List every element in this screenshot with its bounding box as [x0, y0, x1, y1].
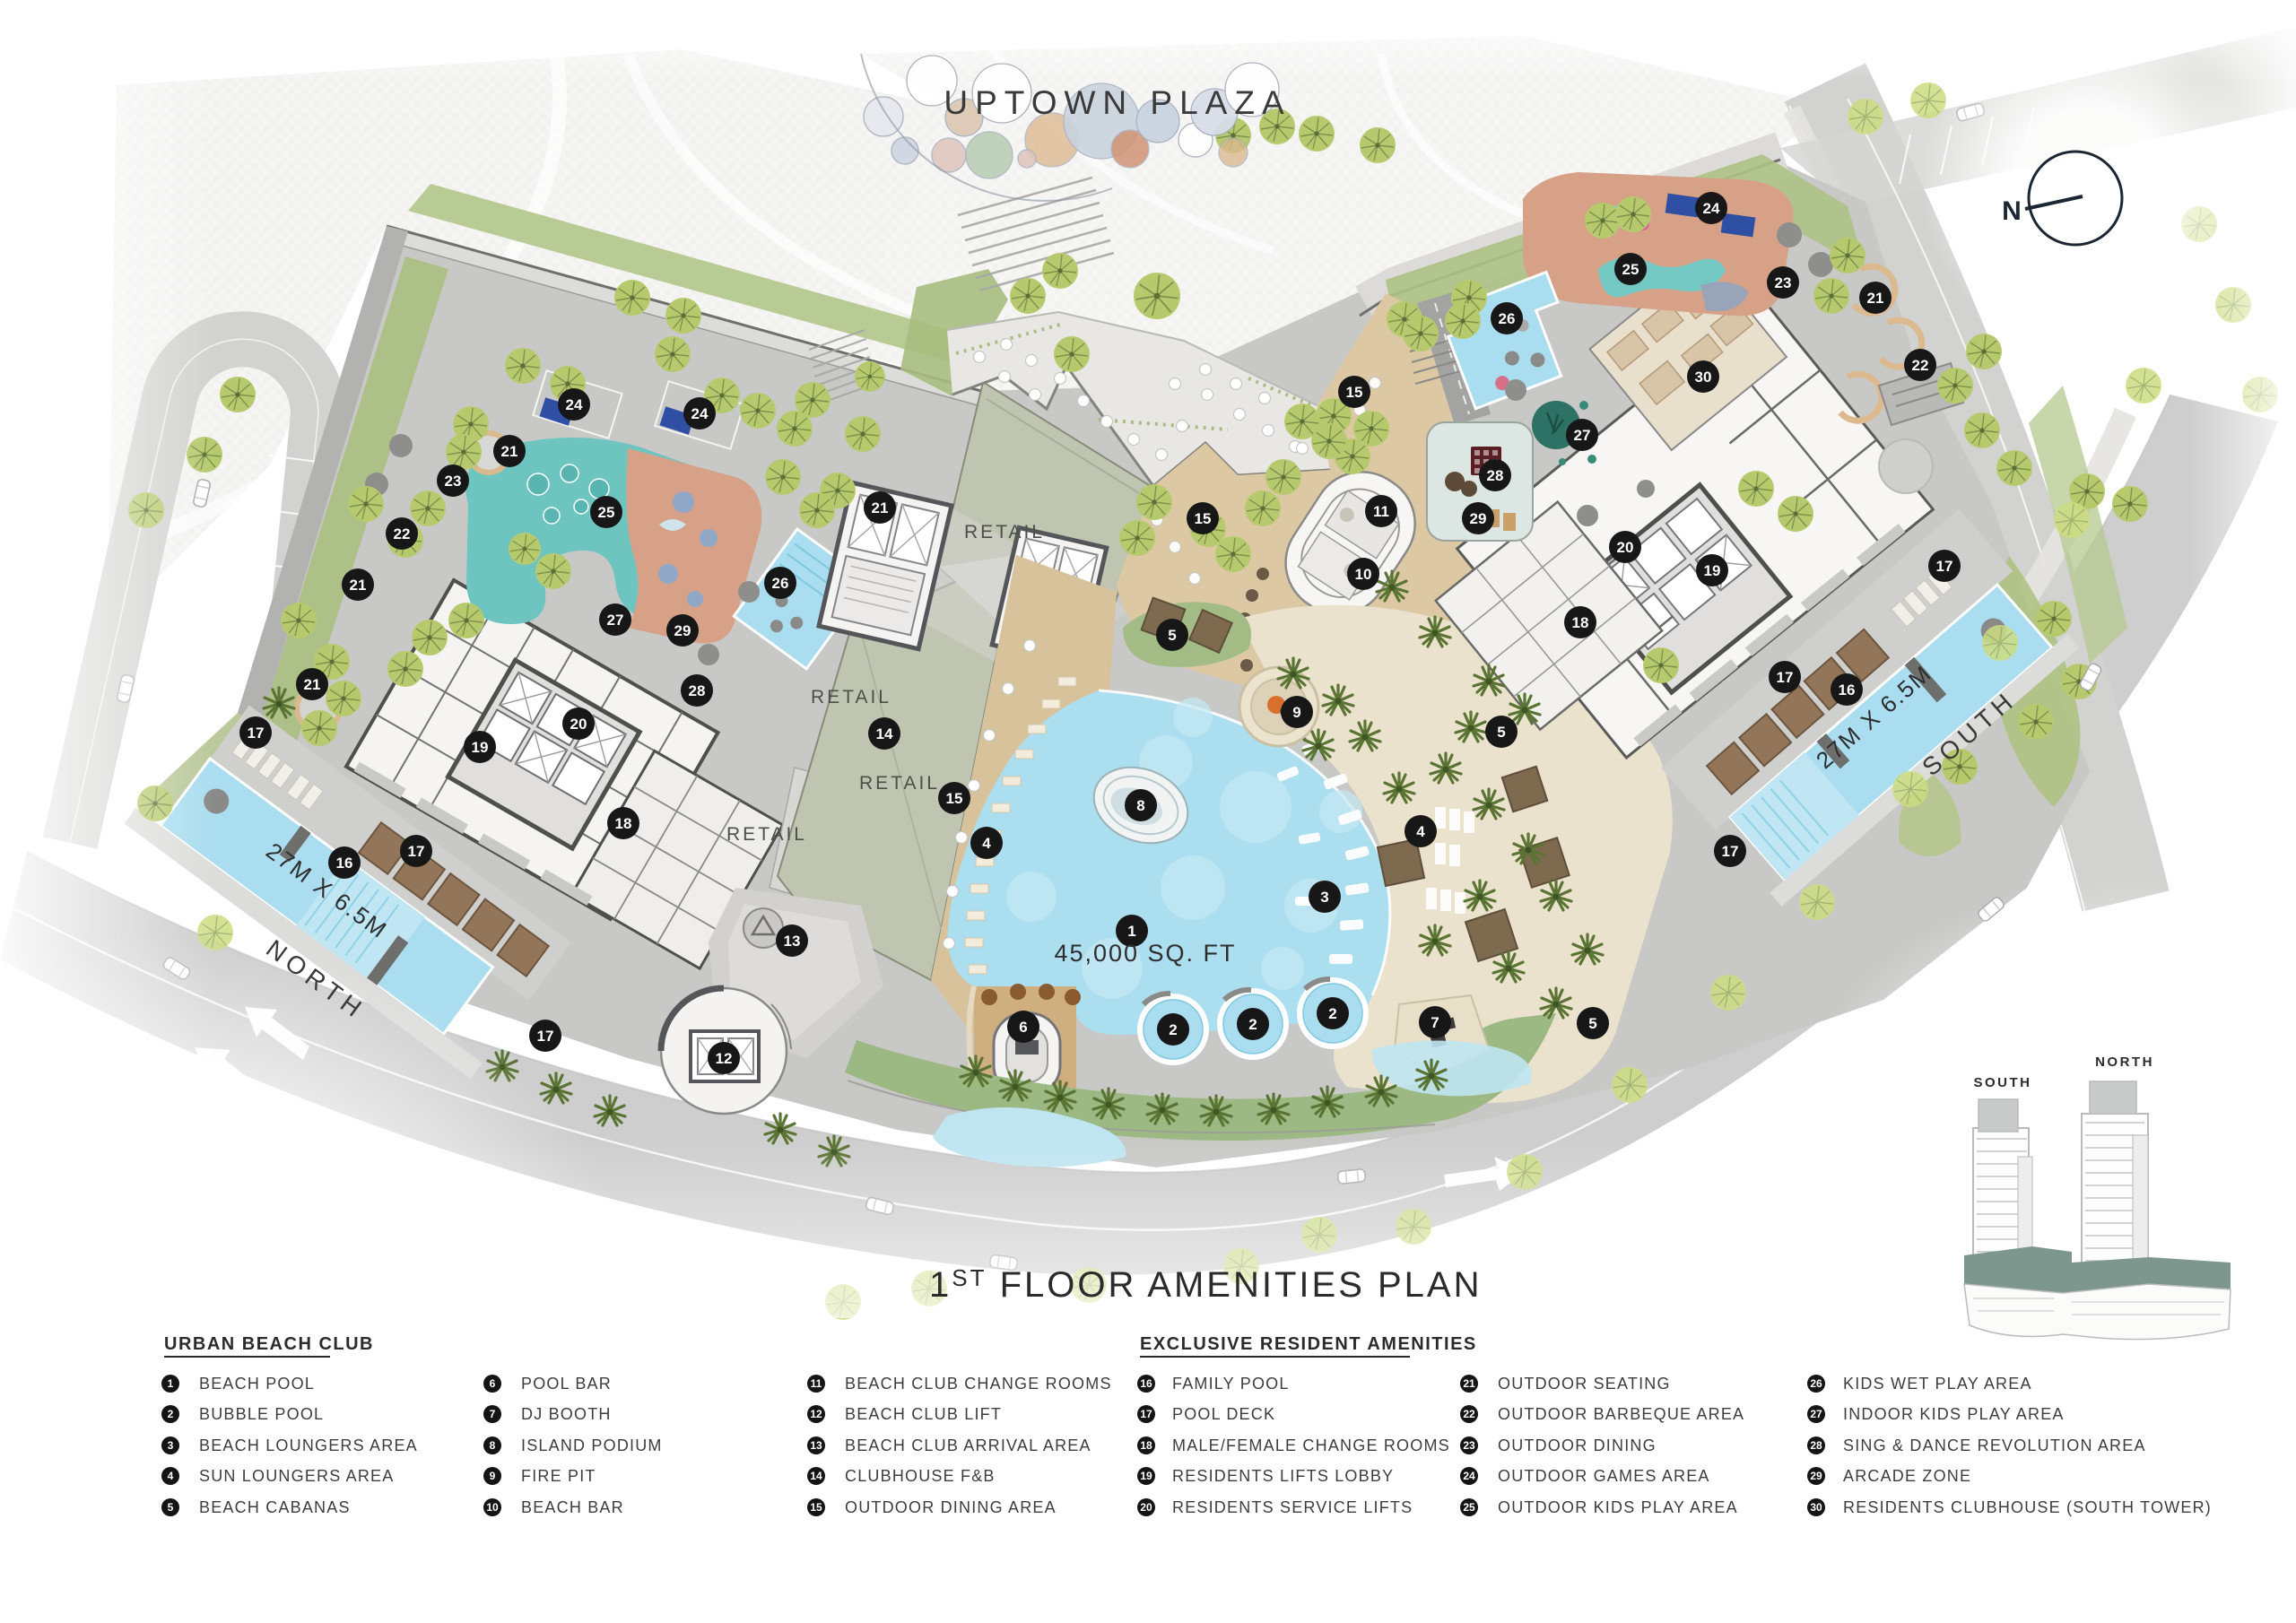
svg-text:N: N — [2002, 196, 2022, 226]
svg-text:24: 24 — [1703, 200, 1720, 217]
svg-text:30: 30 — [1810, 1501, 1822, 1514]
svg-text:4: 4 — [168, 1470, 174, 1482]
svg-text:OUTDOOR GAMES AREA: OUTDOOR GAMES AREA — [1498, 1467, 1710, 1485]
svg-text:28: 28 — [1487, 467, 1504, 484]
svg-text:EXCLUSIVE RESIDENT AMENITIES: EXCLUSIVE RESIDENT AMENITIES — [1140, 1334, 1477, 1354]
svg-text:OUTDOOR SEATING: OUTDOOR SEATING — [1498, 1375, 1671, 1393]
svg-text:25: 25 — [1463, 1501, 1475, 1514]
svg-text:15: 15 — [1195, 510, 1212, 527]
svg-text:RETAIL: RETAIL — [859, 773, 940, 794]
svg-text:19: 19 — [472, 739, 489, 756]
svg-text:15: 15 — [810, 1501, 822, 1514]
svg-text:RETAIL: RETAIL — [811, 687, 891, 707]
svg-text:29: 29 — [674, 622, 691, 639]
svg-text:19: 19 — [1704, 562, 1721, 579]
svg-text:2: 2 — [168, 1408, 174, 1420]
svg-text:17: 17 — [408, 843, 425, 860]
svg-text:17: 17 — [1777, 669, 1794, 686]
svg-text:MALE/FEMALE CHANGE ROOMS: MALE/FEMALE CHANGE ROOMS — [1172, 1436, 1450, 1454]
svg-text:20: 20 — [1140, 1501, 1152, 1514]
svg-text:CLUBHOUSE F&B: CLUBHOUSE F&B — [845, 1467, 996, 1485]
svg-text:21: 21 — [501, 443, 518, 460]
svg-text:24: 24 — [1463, 1470, 1475, 1482]
svg-text:2: 2 — [1248, 1016, 1257, 1033]
svg-text:25: 25 — [598, 504, 615, 521]
svg-text:SING & DANCE REVOLUTION AREA: SING & DANCE REVOLUTION AREA — [1843, 1436, 2146, 1454]
svg-text:15: 15 — [946, 790, 963, 807]
svg-text:11: 11 — [811, 1377, 822, 1390]
svg-text:KIDS WET PLAY AREA: KIDS WET PLAY AREA — [1843, 1375, 2032, 1393]
svg-text:BUBBLE POOL: BUBBLE POOL — [199, 1405, 324, 1423]
svg-text:23: 23 — [1775, 274, 1792, 291]
svg-text:URBAN BEACH CLUB: URBAN BEACH CLUB — [164, 1334, 374, 1354]
svg-text:8: 8 — [1136, 797, 1144, 814]
svg-text:4: 4 — [1416, 823, 1425, 840]
svg-text:BEACH CLUB LIFT: BEACH CLUB LIFT — [845, 1405, 1002, 1423]
svg-text:6: 6 — [1019, 1019, 1027, 1036]
svg-text:18: 18 — [1572, 614, 1589, 631]
svg-text:29: 29 — [1810, 1470, 1822, 1482]
svg-text:20: 20 — [1617, 539, 1634, 556]
svg-text:21: 21 — [1463, 1377, 1475, 1390]
svg-text:17: 17 — [1140, 1408, 1152, 1420]
svg-text:29: 29 — [1470, 510, 1487, 527]
svg-text:27: 27 — [607, 612, 624, 629]
svg-text:RETAIL: RETAIL — [964, 522, 1045, 542]
svg-text:BEACH CLUB ARRIVAL AREA: BEACH CLUB ARRIVAL AREA — [845, 1436, 1091, 1454]
svg-text:14: 14 — [876, 725, 893, 742]
svg-text:17: 17 — [248, 725, 265, 742]
svg-text:INDOOR KIDS PLAY AREA: INDOOR KIDS PLAY AREA — [1843, 1405, 2065, 1423]
svg-text:UPTOWN PLAZA: UPTOWN PLAZA — [944, 84, 1291, 121]
svg-text:17: 17 — [1936, 558, 1953, 575]
svg-text:FAMILY POOL: FAMILY POOL — [1172, 1375, 1290, 1393]
svg-text:18: 18 — [1140, 1439, 1152, 1452]
svg-text:OUTDOOR DINING AREA: OUTDOOR DINING AREA — [845, 1498, 1057, 1516]
svg-text:RESIDENTS CLUBHOUSE (SOUTH TOW: RESIDENTS CLUBHOUSE (SOUTH TOWER) — [1843, 1498, 2212, 1516]
svg-text:26: 26 — [1810, 1377, 1822, 1390]
svg-text:8: 8 — [490, 1439, 496, 1452]
svg-text:ISLAND PODIUM: ISLAND PODIUM — [521, 1436, 663, 1454]
svg-text:3: 3 — [168, 1439, 174, 1452]
svg-text:11: 11 — [1373, 503, 1389, 520]
svg-text:14: 14 — [810, 1470, 822, 1482]
svg-text:27: 27 — [1810, 1408, 1822, 1420]
svg-text:22: 22 — [394, 525, 411, 542]
svg-text:24: 24 — [691, 405, 709, 422]
svg-text:RESIDENTS LIFTS LOBBY: RESIDENTS LIFTS LOBBY — [1172, 1467, 1394, 1485]
svg-text:2: 2 — [1169, 1021, 1177, 1038]
svg-text:POOL DECK: POOL DECK — [1172, 1405, 1275, 1423]
svg-text:28: 28 — [689, 682, 706, 699]
svg-text:RESIDENTS SERVICE LIFTS: RESIDENTS SERVICE LIFTS — [1172, 1498, 1413, 1516]
svg-text:BEACH LOUNGERS AREA: BEACH LOUNGERS AREA — [199, 1436, 418, 1454]
svg-text:12: 12 — [716, 1050, 733, 1067]
svg-text:9: 9 — [490, 1470, 496, 1482]
svg-text:24: 24 — [566, 396, 583, 413]
svg-text:26: 26 — [772, 575, 789, 592]
svg-text:ARCADE ZONE: ARCADE ZONE — [1843, 1467, 1971, 1485]
svg-text:SOUTH: SOUTH — [1974, 1075, 2032, 1090]
svg-text:DJ BOOTH: DJ BOOTH — [521, 1405, 612, 1423]
svg-text:1: 1 — [168, 1377, 174, 1390]
svg-text:2: 2 — [1328, 1005, 1336, 1022]
svg-text:21: 21 — [1867, 290, 1884, 307]
svg-text:23: 23 — [445, 473, 462, 490]
svg-text:21: 21 — [350, 577, 367, 594]
svg-text:12: 12 — [810, 1408, 822, 1420]
svg-text:22: 22 — [1912, 357, 1929, 374]
svg-text:17: 17 — [1722, 843, 1739, 860]
svg-text:SUN LOUNGERS AREA: SUN LOUNGERS AREA — [199, 1467, 394, 1485]
svg-text:45,000 SQ. FT: 45,000 SQ. FT — [1054, 940, 1236, 967]
svg-text:21: 21 — [304, 676, 321, 693]
svg-text:10: 10 — [1355, 566, 1372, 583]
svg-text:5: 5 — [168, 1501, 174, 1514]
svg-text:18: 18 — [615, 815, 632, 832]
svg-text:25: 25 — [1622, 261, 1639, 278]
svg-text:OUTDOOR BARBEQUE AREA: OUTDOOR BARBEQUE AREA — [1498, 1405, 1744, 1423]
svg-text:7: 7 — [490, 1408, 496, 1420]
svg-text:23: 23 — [1463, 1439, 1475, 1452]
svg-text:BEACH CLUB CHANGE ROOMS: BEACH CLUB CHANGE ROOMS — [845, 1375, 1112, 1393]
svg-text:NORTH: NORTH — [2095, 1055, 2154, 1070]
svg-text:BEACH CABANAS: BEACH CABANAS — [199, 1498, 351, 1516]
svg-text:26: 26 — [1499, 310, 1516, 327]
svg-text:5: 5 — [1168, 627, 1176, 644]
svg-text:15: 15 — [1346, 384, 1363, 401]
svg-text:BEACH BAR: BEACH BAR — [521, 1498, 624, 1516]
svg-text:16: 16 — [1140, 1377, 1152, 1390]
svg-text:7: 7 — [1431, 1014, 1439, 1031]
svg-text:19: 19 — [1140, 1470, 1152, 1482]
svg-text:6: 6 — [490, 1377, 496, 1390]
svg-text:1: 1 — [1127, 923, 1135, 940]
svg-text:27: 27 — [1574, 427, 1591, 444]
svg-text:13: 13 — [784, 933, 801, 950]
svg-text:OUTDOOR DINING: OUTDOOR DINING — [1498, 1436, 1657, 1454]
svg-text:3: 3 — [1320, 889, 1328, 906]
svg-text:16: 16 — [336, 855, 353, 872]
svg-text:BEACH POOL: BEACH POOL — [199, 1375, 315, 1393]
svg-text:4: 4 — [982, 835, 991, 852]
svg-text:5: 5 — [1497, 724, 1505, 741]
svg-text:21: 21 — [872, 499, 889, 516]
svg-text:FIRE PIT: FIRE PIT — [521, 1467, 596, 1485]
svg-text:RETAIL: RETAIL — [726, 824, 807, 845]
svg-text:9: 9 — [1292, 704, 1300, 721]
svg-text:30: 30 — [1695, 369, 1712, 386]
svg-text:13: 13 — [810, 1439, 822, 1452]
svg-text:5: 5 — [1588, 1015, 1596, 1032]
svg-text:17: 17 — [537, 1028, 554, 1045]
svg-text:28: 28 — [1810, 1439, 1822, 1452]
svg-text:1ST FLOOR AMENITIES PLAN: 1ST FLOOR AMENITIES PLAN — [929, 1264, 1483, 1305]
svg-text:10: 10 — [486, 1501, 499, 1514]
svg-text:16: 16 — [1839, 681, 1856, 699]
svg-text:POOL BAR: POOL BAR — [521, 1375, 612, 1393]
svg-text:20: 20 — [570, 716, 587, 733]
svg-text:22: 22 — [1463, 1408, 1475, 1420]
svg-text:OUTDOOR KIDS PLAY AREA: OUTDOOR KIDS PLAY AREA — [1498, 1498, 1738, 1516]
